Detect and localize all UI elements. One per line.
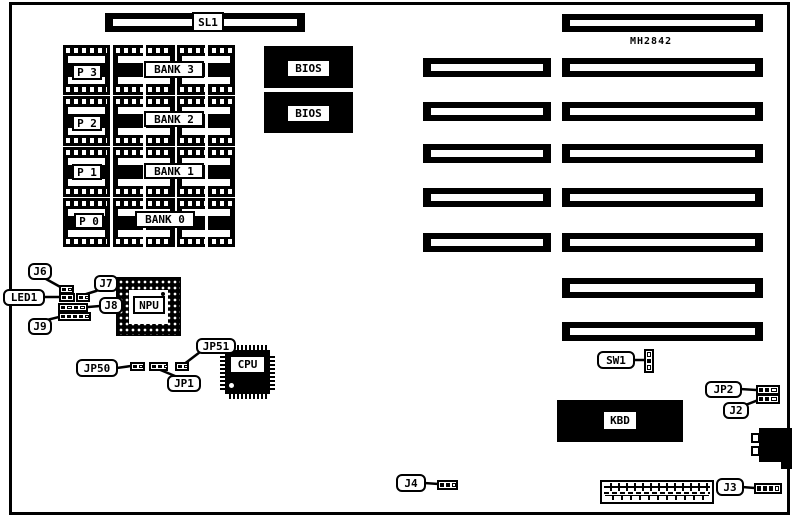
j2-jumper bbox=[756, 394, 780, 404]
cpu-pin1-dot bbox=[229, 383, 234, 388]
motherboard-diagram: SL1 P 3 BANK 3 P 2 BANK 2 P 1 BANK 1 P 0… bbox=[0, 0, 792, 520]
callout-jp50: JP50 bbox=[76, 359, 118, 377]
callout-pointer-lines bbox=[0, 0, 792, 520]
bios-chip-1-label: BIOS bbox=[288, 61, 329, 76]
label-p1: P 1 bbox=[72, 164, 102, 180]
label-p2: P 2 bbox=[72, 115, 102, 131]
jp50-jumper bbox=[130, 362, 145, 371]
bios-chip-2-label: BIOS bbox=[288, 106, 329, 121]
callout-led1: LED1 bbox=[3, 289, 45, 306]
jp1-jumper bbox=[149, 362, 168, 371]
callout-jp51: JP51 bbox=[196, 338, 236, 354]
din-mount-tab bbox=[751, 433, 760, 443]
callout-j9: J9 bbox=[28, 318, 52, 335]
label-p3: P 3 bbox=[72, 64, 102, 80]
callout-jp1: JP1 bbox=[167, 375, 201, 392]
callout-j2: J2 bbox=[723, 402, 749, 419]
din-mount-tab bbox=[751, 446, 760, 456]
j7-jumper bbox=[76, 293, 90, 302]
callout-sw1: SW1 bbox=[597, 351, 635, 369]
label-bank2: BANK 2 bbox=[144, 111, 204, 127]
callout-j4: J4 bbox=[396, 474, 426, 492]
label-p0: P 0 bbox=[74, 213, 104, 229]
callout-j6: J6 bbox=[28, 263, 52, 280]
led1-component bbox=[59, 293, 75, 302]
label-bank0: BANK 0 bbox=[135, 211, 195, 228]
callout-j3: J3 bbox=[716, 478, 744, 496]
sw1-dip-switch bbox=[644, 349, 654, 373]
callout-jp2: JP2 bbox=[705, 381, 742, 398]
j3-jumper bbox=[754, 483, 782, 494]
jp51-jumper bbox=[175, 362, 189, 371]
slot-sl1-label: SL1 bbox=[192, 12, 224, 32]
j9-header bbox=[58, 312, 91, 321]
cpu-label: CPU bbox=[231, 357, 264, 372]
j4-jumper bbox=[437, 480, 458, 490]
chip-id-text: MH2842 bbox=[630, 36, 672, 47]
label-bank1: BANK 1 bbox=[144, 163, 204, 179]
label-bank3: BANK 3 bbox=[144, 61, 204, 78]
callout-j7: J7 bbox=[94, 275, 118, 292]
j8-header bbox=[58, 303, 88, 312]
npu-label: NPU bbox=[133, 296, 165, 314]
callout-j8: J8 bbox=[99, 297, 123, 314]
kbd-label: KBD bbox=[604, 412, 636, 429]
